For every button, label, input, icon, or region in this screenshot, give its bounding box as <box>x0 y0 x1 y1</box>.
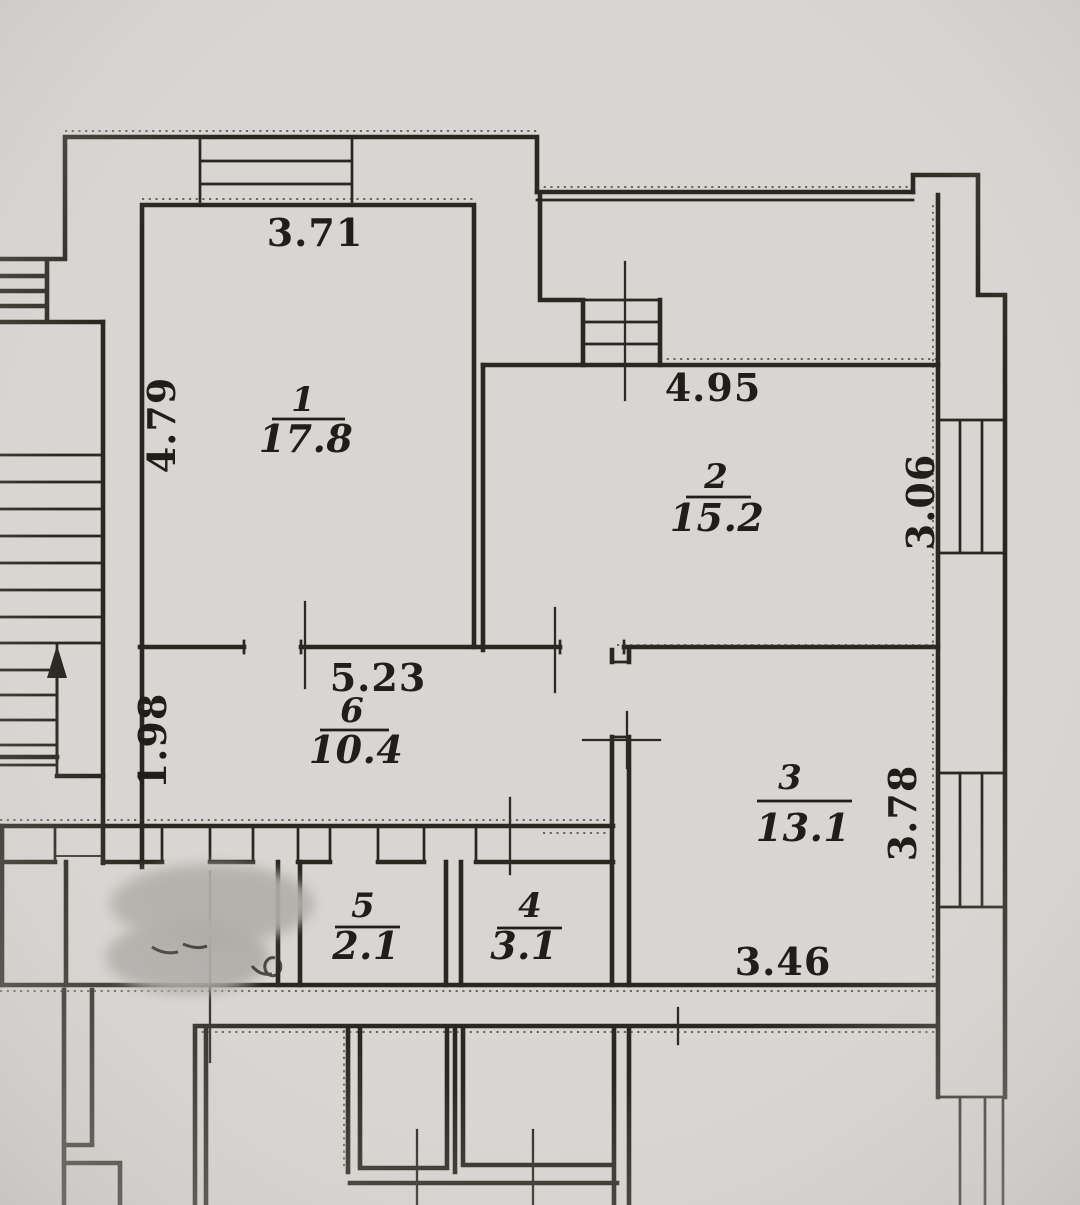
room-5-number: 5 <box>351 886 375 926</box>
room-3-number: 3 <box>778 758 802 798</box>
room-6-number: 6 <box>340 691 364 731</box>
dim-room1-depth: 4.79 <box>139 377 184 474</box>
dim-room1-width: 3.71 <box>267 210 364 255</box>
room-4-area: 3.1 <box>490 923 558 968</box>
room-5-area: 2.1 <box>331 923 400 968</box>
dim-room3-depth: 3.78 <box>880 765 925 862</box>
room-2-number: 2 <box>703 457 728 497</box>
room-1-area: 17.8 <box>259 416 354 461</box>
dim-room3-width: 3.46 <box>735 939 832 984</box>
dim-hall-depth: 1.98 <box>130 693 175 790</box>
floor-plan-scan: 3.71 4.95 5.23 3.46 4.79 3.06 1.98 3.78 … <box>0 0 1080 1205</box>
room-1-number: 1 <box>291 380 315 420</box>
dim-room2-width: 4.95 <box>665 365 762 410</box>
dim-room2-depth: 3.06 <box>898 454 943 551</box>
room-6-area: 10.4 <box>309 727 404 772</box>
room-3-area: 13.1 <box>756 805 851 850</box>
room-4-number: 4 <box>518 886 542 926</box>
floor-plan-page: 3.71 4.95 5.23 3.46 4.79 3.06 1.98 3.78 … <box>0 0 1080 1205</box>
room-2-area: 15.2 <box>670 495 765 540</box>
